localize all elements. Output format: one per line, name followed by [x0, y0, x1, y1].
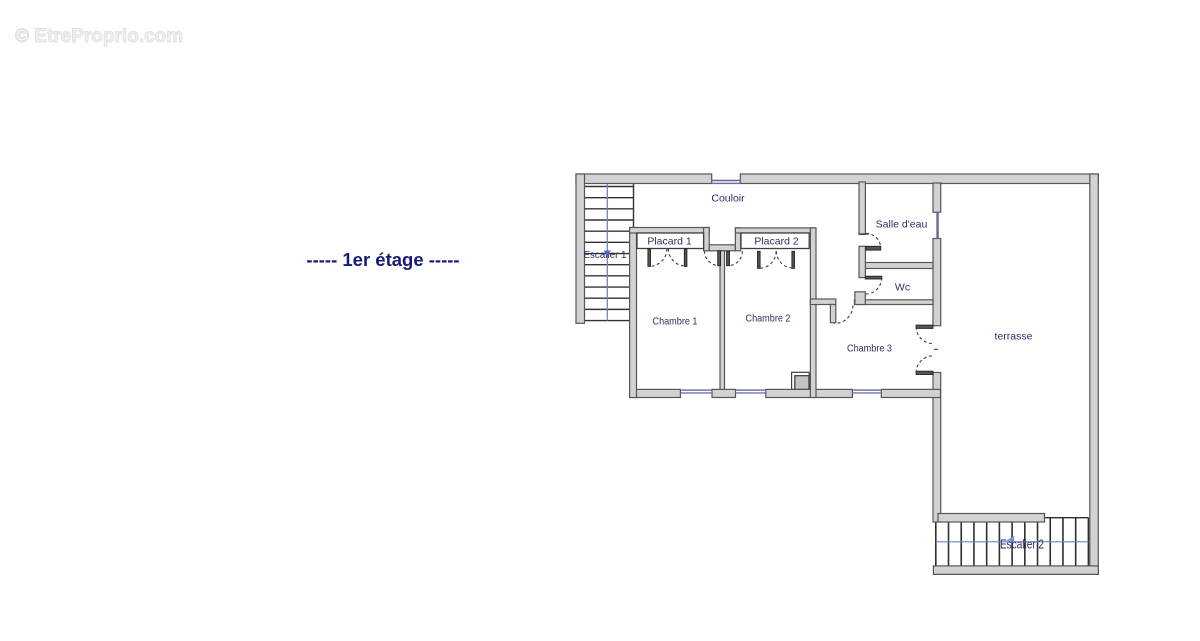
svg-text:Salle d'eau: Salle d'eau	[876, 219, 928, 231]
svg-text:Wc: Wc	[895, 282, 910, 294]
svg-text:terrasse: terrasse	[995, 331, 1033, 343]
svg-text:Escalier 2: Escalier 2	[1000, 538, 1044, 552]
svg-text:Placard 2: Placard 2	[754, 236, 799, 248]
svg-text:© EtreProprio.com: © EtreProprio.com	[15, 26, 183, 47]
svg-text:Couloir: Couloir	[711, 193, 745, 205]
svg-text:Chambre 1: Chambre 1	[653, 316, 698, 328]
svg-text:----- 1er étage -----: ----- 1er étage -----	[306, 249, 459, 270]
svg-text:Chambre 2: Chambre 2	[746, 313, 791, 325]
svg-text:Chambre 3: Chambre 3	[847, 343, 892, 355]
svg-text:Placard 1: Placard 1	[647, 235, 692, 247]
